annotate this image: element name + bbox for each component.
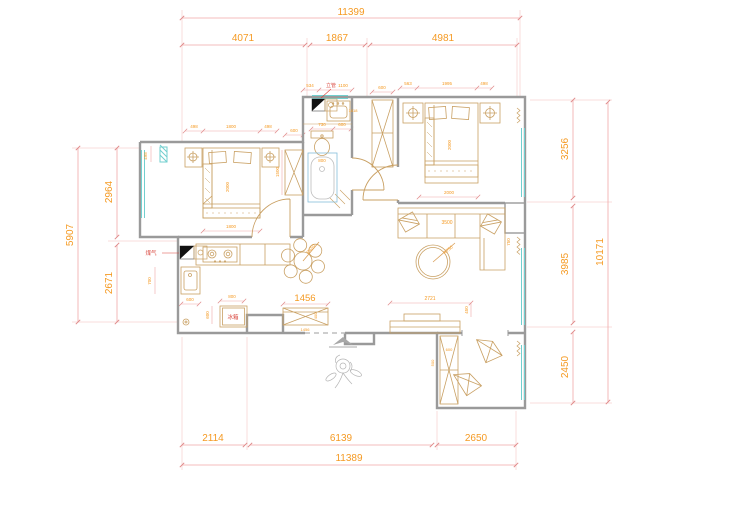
dim-bed1-wardrobe: 600: [290, 128, 298, 133]
red-labels: 煤气 立管 冰箱: [145, 82, 336, 321]
dim-bath-tub: 800: [318, 158, 326, 163]
dim-bottom-total: 11389: [335, 453, 363, 464]
dim-kitchen-side: 700: [147, 277, 152, 285]
wardrobe-master: [285, 150, 303, 195]
wardrobe-hall: [372, 100, 393, 167]
dim-bottom-3: 2650: [465, 433, 488, 444]
dim-bed1-bottom: 1800: [226, 224, 237, 229]
floor-drain-center: [185, 321, 187, 323]
dim-right-2: 3985: [560, 252, 571, 275]
dim-bed2-left: 563: [404, 81, 412, 86]
floor-plan-canvas: 11399 4071 1867 4981 2114 6139 2650 1138…: [0, 0, 740, 530]
dim-bath-basin: 730: [318, 122, 326, 127]
toilet: [311, 131, 333, 156]
dim-kitchen-fridge: 800: [228, 294, 236, 299]
lounge-chair: [469, 334, 506, 368]
dim-bed2-width: 1995: [442, 81, 453, 86]
dim-left-window: 498: [143, 152, 148, 160]
dim-right-3: 2450: [560, 355, 571, 378]
dim-top-3: 4981: [432, 33, 455, 44]
label-pipe-riser: 立管: [326, 82, 336, 89]
dim-shoe-depth: 400: [313, 312, 318, 319]
dim-sofa-depth: 750: [506, 238, 511, 246]
shoe-cabinet: [283, 308, 328, 325]
dim-kitchen-2: 600: [205, 311, 210, 319]
label-gas-riser: 煤气: [145, 249, 157, 257]
kitchen-counter: [196, 244, 290, 265]
flower-sketch: [325, 355, 363, 388]
bed-master: [185, 148, 279, 218]
lounge-chair: [449, 369, 484, 399]
sofa: [398, 208, 505, 270]
dim-left-2: 2671: [104, 271, 115, 294]
pipe-riser-marker: [312, 99, 325, 111]
dim-left-1: 2964: [104, 180, 115, 203]
dim-bed1-left: 498: [190, 124, 198, 129]
dim-kitchen-1: 600: [186, 297, 194, 302]
dim-bottom-1: 2114: [202, 433, 224, 444]
tv-cabinet: [390, 314, 460, 333]
extension-lines: [72, 10, 612, 470]
dim-bed2-right: 498: [480, 81, 488, 86]
dim-top-1: 4071: [232, 33, 255, 44]
dim-bath-1: 534: [306, 83, 314, 88]
dim-shoe-cabinet: 1456: [294, 293, 315, 304]
curtain-symbols: [517, 108, 520, 356]
dim-bath-wc: 600: [338, 122, 346, 127]
dim-top-total: 11399: [337, 7, 365, 18]
entry-arrow: [333, 337, 353, 345]
dim-leisure-depth: 500: [430, 359, 435, 366]
dim-table-radius: R650: [305, 243, 316, 255]
dim-shoe-cabinet-sub: 1456: [301, 327, 311, 332]
dim-top-2: 1867: [326, 33, 349, 44]
dim-bed1-length: 2000: [225, 181, 230, 192]
furniture: [181, 100, 506, 404]
dim-bed2-bottom: 2000: [444, 190, 455, 195]
dim-tv-side: 450: [464, 306, 469, 314]
dim-bath-2: 1100: [338, 83, 348, 88]
gas-riser-marker: [180, 246, 194, 259]
label-fridge: 冰箱: [227, 313, 239, 321]
dim-bed2-length: 2000: [447, 139, 452, 150]
kitchen-sink: [181, 267, 200, 294]
dim-bed1-width: 1800: [226, 124, 237, 129]
dim-rug-radius: R750: [442, 244, 454, 255]
dim-right-total: 10171: [595, 238, 606, 266]
floor-drain: [183, 319, 189, 325]
dim-leisure-cabinet: 600: [446, 347, 453, 352]
dim-left-total: 5907: [65, 223, 76, 246]
dim-right-1: 3256: [560, 137, 571, 160]
dim-bottom-2: 6139: [330, 433, 353, 444]
dim-hall-wardrobe: 600: [378, 85, 386, 90]
floor-plan-drawing: 11399 4071 1867 4981 2114 6139 2650 1138…: [0, 0, 740, 530]
dim-tv-wall: 2721: [424, 296, 435, 302]
dim-bed1-wardrobe-h: 1500: [275, 166, 280, 177]
dim-bed1-right: 498: [264, 124, 272, 129]
dining-table: [282, 239, 325, 284]
dim-sofa-width: 3500: [441, 220, 452, 226]
door-swings: [252, 158, 398, 237]
dim-bath-tag: 1818: [349, 108, 359, 113]
